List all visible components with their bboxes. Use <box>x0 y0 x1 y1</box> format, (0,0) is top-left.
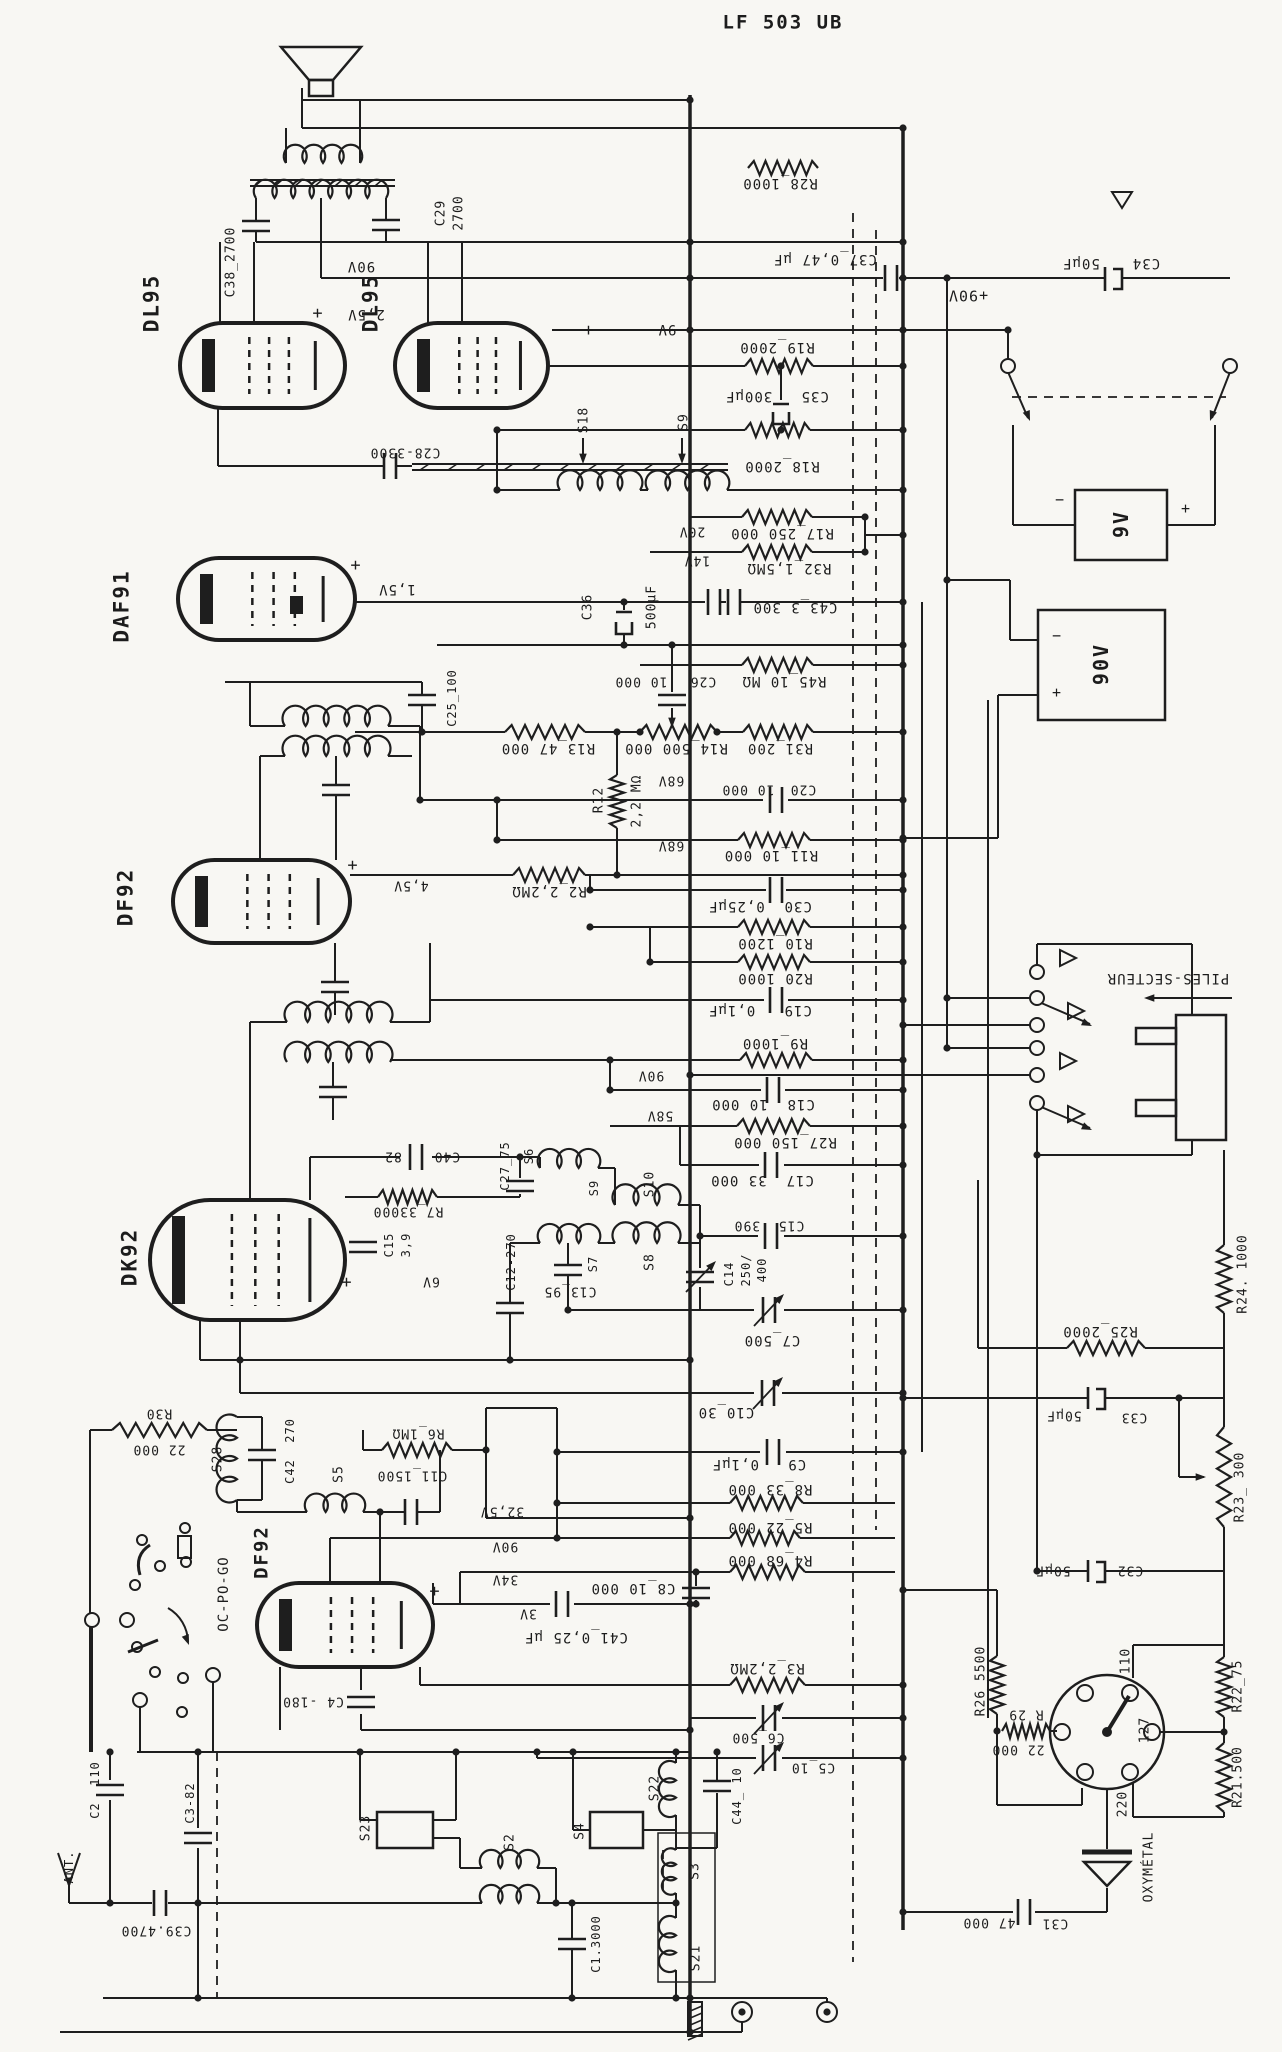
label-ant: ANT. <box>63 1851 75 1884</box>
label-bp9: + <box>1181 502 1191 517</box>
label-c30: C30 0,25µF <box>708 899 812 913</box>
label-bat90: 90V <box>1091 643 1111 685</box>
label-c15xa: C15 <box>383 1233 395 1258</box>
label-s22: S22 <box>649 1775 662 1801</box>
label-p1: + <box>312 306 323 323</box>
label-p5: + <box>341 1275 352 1292</box>
label-df92a: DF92 <box>116 868 137 927</box>
label-oxy: OXYMÉTAL <box>1143 1832 1156 1903</box>
label-daf91: DAF91 <box>112 569 133 642</box>
label-c4: C4 -180 <box>282 1695 344 1708</box>
label-c9: C9 0,1µF <box>712 1457 806 1471</box>
label-r30a: R30 <box>146 1407 172 1420</box>
label-c36a: C36 <box>582 594 595 620</box>
label-v3: 3V <box>519 1607 537 1620</box>
label-c19: C19 0,1µF <box>708 1003 812 1017</box>
label-c26b: C26 <box>690 675 716 688</box>
label-c18: C18 10 000 <box>711 1097 815 1111</box>
label-v58: 58V <box>647 1109 673 1122</box>
schematic-sheet: LF 503 UBDL95DL95DAF91DF92DK92DF92C38_27… <box>0 0 1282 2052</box>
label-bat9: 9V <box>1111 510 1131 538</box>
label-r4: R4_68 000 <box>728 1553 813 1567</box>
label-s23: S23 <box>360 1815 373 1841</box>
label-piles: PILES-SECTEUR <box>1107 971 1230 985</box>
label-c10: C10_30 <box>698 1405 755 1419</box>
label-r2: R2_2,2MΩ <box>511 884 586 898</box>
label-r8: R8_33 000 <box>728 1482 813 1496</box>
label-c40b: C40 <box>434 1150 460 1163</box>
label-r22: R22_75 <box>1232 1660 1245 1713</box>
label-c33a: 50µF <box>1046 1409 1081 1422</box>
label-c32a: 50µF <box>1035 1564 1070 1577</box>
label-c15: C15 390 <box>734 1219 805 1232</box>
label-bm9: − <box>1055 493 1065 508</box>
label-v90m: 90V <box>638 1069 664 1082</box>
label-c39: C39.4700 <box>121 1924 192 1937</box>
label-p6: + <box>429 1584 440 1601</box>
label-r32: R32_1,5MΩ <box>747 561 832 575</box>
label-s28: S28 <box>212 1446 225 1472</box>
label-r21: R21.500 <box>1232 1746 1245 1808</box>
label-v45: 4,5V <box>393 879 428 892</box>
label-c14b: 250/ <box>740 1254 752 1287</box>
label-v15: 1,5V <box>378 582 416 596</box>
label-c37: C37_0,47 µF <box>773 252 877 266</box>
label-c34a: 50µF <box>1062 256 1100 270</box>
label-r7: R7_33000 <box>373 1205 444 1218</box>
label-r19: R19_2000 <box>739 340 814 354</box>
label-c5: C5_10 <box>791 1761 835 1774</box>
label-s9t: S9 <box>678 413 691 431</box>
label-c29a: C29 <box>435 200 448 226</box>
label-s2: S2 <box>504 1833 517 1851</box>
label-c2: C2 110 <box>89 1761 101 1819</box>
label-v25: 2,5V <box>347 307 385 321</box>
label-r27: R27_150 000 <box>733 1135 837 1149</box>
label-df92b: DF92 <box>253 1525 272 1579</box>
label-c29b: 2700 <box>453 195 466 230</box>
label-c42: C42 270 <box>284 1418 296 1484</box>
label-c38: C38_2700 <box>225 227 238 298</box>
label-bp90: + <box>1052 686 1062 701</box>
label-v90b: 90V <box>492 1540 518 1553</box>
label-r24: R24. 1000 <box>1237 1234 1250 1313</box>
label-c20a: 10 000 <box>722 783 775 796</box>
label-s9m: S9 <box>588 1180 600 1196</box>
label-r29a: R 29 <box>1008 1708 1043 1721</box>
label-c28: C28-3300 <box>370 446 441 459</box>
label-v220: 220 <box>1117 1791 1130 1817</box>
label-bm90: − <box>1052 629 1062 644</box>
label-dk92: DK92 <box>120 1228 141 1287</box>
label-v90top: 90V <box>347 259 375 273</box>
label-c1: C1.3000 <box>590 1915 602 1973</box>
label-v9: 9V <box>658 322 677 336</box>
label-c34b: C34 <box>1132 256 1160 270</box>
label-r26: R26_5500 <box>975 1646 988 1717</box>
label-r28: R28_1000 <box>742 176 817 190</box>
label-c14a: C14 <box>723 1262 735 1287</box>
label-v68b: 68V <box>658 839 684 852</box>
label-c32b: C32 <box>1117 1564 1143 1577</box>
label-r9: R9_1000 <box>742 1036 808 1050</box>
label-r6: R6_1MΩ <box>392 1427 445 1440</box>
label-dl95a: DL95 <box>142 274 163 333</box>
label-c40a: 82 <box>384 1150 402 1163</box>
label-c15xb: 3,9 <box>400 1233 412 1258</box>
label-c35: C35 300µF <box>725 389 829 403</box>
label-c26a: 10 000 <box>615 675 668 688</box>
label-p2: + <box>583 323 594 340</box>
label-v68a: 68V <box>658 774 684 787</box>
schematic-drawing <box>0 0 1282 2052</box>
label-v110: 110 <box>1120 1648 1133 1674</box>
label-r13: R13_47 000 <box>501 741 595 755</box>
label-c7: C7_500 <box>744 1333 801 1347</box>
label-c17: C17 33 000 <box>710 1173 814 1187</box>
label-c12: C12-270 <box>505 1233 517 1291</box>
label-r31: R31_200 <box>747 741 813 755</box>
label-v325: 32,5V <box>480 1505 524 1518</box>
label-c41: C41_0,25 µF <box>524 1630 628 1644</box>
label-v20: 20V <box>679 525 705 538</box>
label-v34: 34V <box>492 1573 518 1586</box>
label-c44: C44_ 10 <box>731 1767 743 1825</box>
label-s5: S5 <box>333 1465 346 1483</box>
label-s8: S8 <box>644 1253 657 1271</box>
label-r12b: 2,2 MΩ <box>631 775 644 828</box>
label-p3: + <box>350 558 361 575</box>
label-c6: C6_500 <box>732 1731 785 1744</box>
label-r30b: 22 000 <box>133 1443 186 1456</box>
label-title: LF 503 UB <box>723 14 844 33</box>
label-r12a: R12 <box>593 787 606 813</box>
label-c31a: 47 000 <box>963 1916 1016 1929</box>
label-c31b: C31 <box>1042 1917 1068 1930</box>
label-v90p: +90V <box>948 288 988 303</box>
label-ocpogo: OC-PO-GO <box>217 1556 231 1631</box>
label-c43: C43_3 300 <box>753 600 838 614</box>
label-r11: R11_10 000 <box>724 848 818 862</box>
label-v127: 127 <box>1139 1717 1152 1743</box>
label-c8: C8_10 000 <box>591 1581 676 1595</box>
label-s6: S6 <box>523 1148 535 1164</box>
label-s7: S7 <box>587 1256 599 1272</box>
label-s21: S21 <box>690 1945 703 1971</box>
label-c11: C11_1500 <box>377 1469 448 1482</box>
label-r17: R17_250 000 <box>730 526 834 540</box>
label-s3: S3 <box>689 1862 702 1880</box>
label-c27: C27_75 <box>499 1141 511 1190</box>
label-r23: R23_ 300 <box>1234 1452 1247 1523</box>
label-s4: S4 <box>574 1822 587 1840</box>
label-c33b: C33 <box>1121 1411 1147 1424</box>
label-r14: R14_500 000 <box>624 741 728 755</box>
label-c13: C13_95 <box>544 1285 597 1298</box>
label-r10: R10_1200 <box>737 936 812 950</box>
label-c20b: C20 <box>790 783 816 796</box>
label-r25: R25_2000 <box>1062 1324 1137 1338</box>
label-r18: R18_2000 <box>744 459 819 473</box>
label-r3: R3_2,2MΩ <box>729 1661 804 1675</box>
label-r20: R20 1000 <box>737 971 812 985</box>
label-r45: R45_10 MΩ <box>742 674 827 688</box>
label-r29b: 22 000 <box>992 1743 1045 1756</box>
label-c36b: 500µF <box>646 585 659 629</box>
label-s10: S10 <box>644 1171 657 1197</box>
label-p4: + <box>347 858 358 875</box>
label-c14c: 400 <box>756 1258 768 1283</box>
label-s18: S18 <box>578 407 591 433</box>
label-dl95b: DL95 <box>361 274 382 333</box>
label-v6: 6V <box>422 1275 440 1288</box>
label-v14: 14V <box>684 554 710 567</box>
label-c3: C3-82 <box>184 1782 196 1823</box>
label-c25: C25_100 <box>446 669 458 727</box>
label-r5: R5_22 000 <box>728 1520 813 1534</box>
